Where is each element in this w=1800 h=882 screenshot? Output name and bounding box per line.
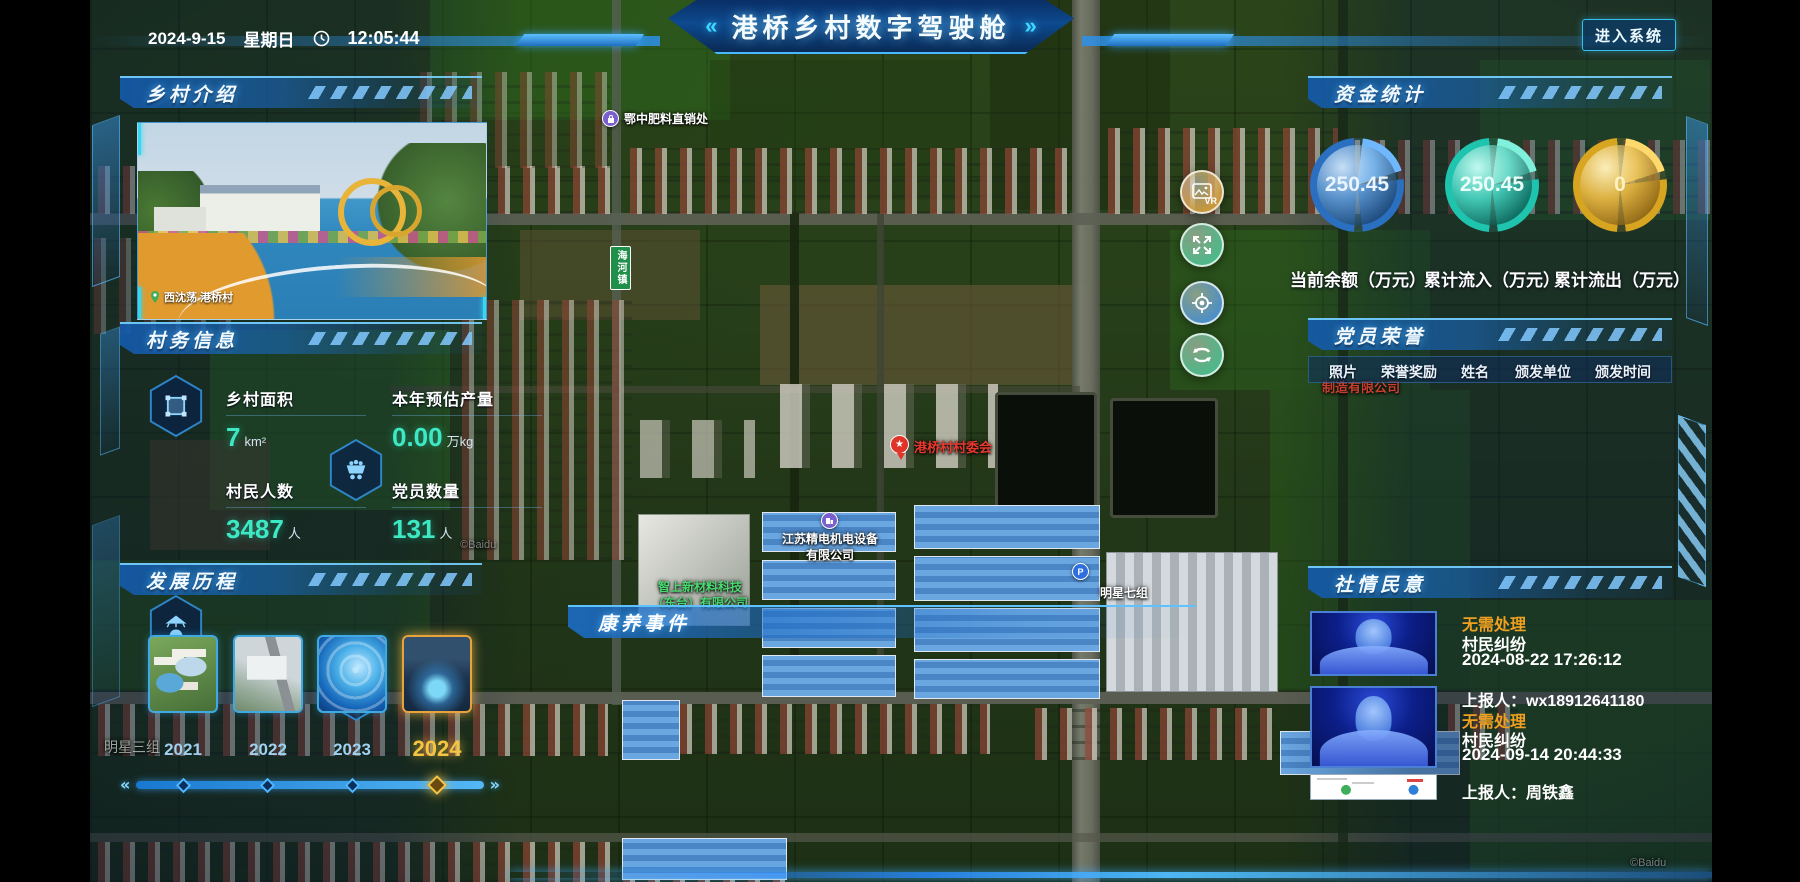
locate-button[interactable] — [1180, 281, 1224, 325]
village-committee-pin[interactable]: ★ — [890, 435, 909, 454]
stage: 鄂中肥料直销处 ★ 港桥村村委会 江苏精电机电设备 有限公司 智上新材料科技 （… — [90, 0, 1712, 882]
gauge-balance: 250.45 — [1310, 138, 1404, 232]
map-label-jingdian: 江苏精电机电设备 有限公司 — [766, 532, 894, 563]
history-year-2021[interactable]: 2021 — [148, 740, 218, 760]
sentiment-panel-header: 社情民意 — [1308, 566, 1672, 598]
history-panel-title: 发展历程 — [146, 567, 238, 594]
company-poi-icon[interactable] — [821, 512, 838, 529]
gauge-outflow-label: 累计流出（万元） — [1542, 266, 1702, 291]
fullscreen-button[interactable] — [1180, 223, 1224, 267]
photo-corner-accent — [137, 287, 141, 320]
datetime-group: 2024-9-15 星期日 12:05:44 — [148, 26, 420, 51]
expand-arrows-icon — [1190, 233, 1214, 257]
photo-corner-accent — [483, 297, 487, 320]
bag-icon — [606, 114, 616, 124]
attachment-thumbnail — [1310, 774, 1437, 800]
health-events-title: 康养事件 — [598, 609, 690, 636]
honors-col-photo: 照片 — [1329, 362, 1357, 382]
event-time: 2024-08-22 17:26:12 — [1462, 650, 1622, 670]
info-panel-header: 村务信息 — [120, 322, 482, 354]
history-thumb-2023[interactable] — [317, 635, 387, 713]
gauge-inflow-value: 250.45 — [1452, 145, 1532, 225]
stat-label: 党员数量 — [392, 478, 542, 508]
stat-label: 乡村面积 — [226, 386, 366, 416]
vr-view-button[interactable]: VR — [1180, 170, 1224, 214]
stat-value: 131 — [392, 514, 435, 544]
honors-panel-title: 党员荣誉 — [1334, 322, 1426, 349]
page-title: 港桥乡村数字驾驶舱 — [731, 8, 1010, 45]
target-icon — [1190, 291, 1214, 315]
stat-value: 3487 — [226, 514, 284, 544]
funds-panel-header: 资金统计 — [1308, 76, 1672, 108]
stat-population: 村民人数 3487人 — [226, 478, 366, 545]
avatar — [1310, 611, 1437, 676]
map-label-mingxing7: 明星七组 — [1100, 586, 1148, 602]
stat-label: 本年预估产量 — [392, 386, 542, 416]
avatar — [1310, 686, 1437, 768]
history-panel-header: 发展历程 — [120, 563, 482, 595]
stat-unit: 人 — [288, 526, 301, 541]
left-frame-decor — [100, 326, 120, 455]
enter-system-button[interactable]: 进入系统 — [1582, 19, 1676, 51]
header-accent-segment — [1106, 34, 1234, 46]
history-thumb-2022[interactable] — [233, 635, 303, 713]
left-frame-decor — [92, 515, 120, 707]
village-photo: 西沈荡 港桥村 — [137, 122, 487, 320]
event-time: 2024-09-14 20:44:33 — [1462, 745, 1622, 765]
honors-col-date: 颁发时间 — [1595, 362, 1651, 382]
photo-ring-sculpture — [370, 185, 422, 237]
sentiment-item[interactable]: 无需处理 村民纠纷 2024-08-22 17:26:12 — [1308, 608, 1672, 682]
stat-unit: 万kg — [447, 434, 474, 449]
history-timeline-slider[interactable]: « » — [120, 776, 500, 796]
health-events-panel-header: 康养事件 — [568, 605, 1196, 638]
stat-icon-area — [147, 374, 205, 438]
switch-layer-button[interactable] — [1180, 333, 1224, 377]
shop-poi-icon[interactable] — [602, 110, 619, 127]
map-label-committee: 港桥村村委会 — [914, 440, 992, 457]
honors-col-unit: 颁发单位 — [1515, 362, 1571, 382]
stat-party: 党员数量 131人 — [392, 478, 542, 545]
dashboard-root: 鄂中肥料直销处 ★ 港桥村村委会 江苏精电机电设备 有限公司 智上新材料科技 （… — [0, 0, 1800, 882]
history-year-2023[interactable]: 2023 — [317, 740, 387, 760]
intro-panel-title: 乡村介绍 — [146, 80, 238, 107]
vr-label: VR — [1204, 196, 1217, 206]
photo-corner-accent — [137, 122, 141, 155]
honors-col-name: 姓名 — [1461, 362, 1489, 382]
baidu-watermark: ©Baidu — [1630, 856, 1666, 870]
gauge-inflow: 250.45 — [1445, 138, 1539, 232]
stat-unit: 人 — [439, 526, 452, 541]
header-accent-segment — [516, 34, 644, 46]
right-frame-decor — [1678, 415, 1706, 587]
stat-value: 7 — [226, 422, 240, 452]
bottom-glow-line — [510, 872, 1712, 878]
stat-unit: km² — [244, 434, 266, 449]
gauge-outflow: 0 — [1573, 138, 1667, 232]
sentiment-item[interactable]: 无需处理 村民纠纷 2024-09-14 20:44:33 上报人：周铁鑫 — [1308, 684, 1672, 804]
intro-panel-header: 乡村介绍 — [120, 76, 482, 108]
title-right-decor-icon: » — [1025, 13, 1037, 39]
photo-building — [154, 207, 206, 233]
honors-panel-header: 党员荣誉 — [1308, 318, 1672, 350]
stat-value: 0.00 — [392, 422, 443, 452]
location-pin-icon — [150, 291, 160, 303]
info-panel-title: 村务信息 — [146, 326, 238, 353]
history-thumb-2021[interactable] — [148, 635, 218, 713]
photo-caption: 西沈荡 港桥村 — [150, 289, 233, 305]
title-left-decor-icon: « — [705, 13, 717, 39]
timeline-prev-icon[interactable]: « — [120, 780, 130, 790]
reporter-label: 上报人：周铁鑫 — [1462, 779, 1574, 803]
history-year-2024[interactable]: 2024 — [402, 736, 472, 762]
app-title-plate: « 港桥乡村数字驾驶舱 » — [668, 0, 1074, 54]
road-sign-haihe: 海河镇 — [610, 246, 631, 290]
photo-building — [200, 185, 320, 231]
gauge-balance-value: 250.45 — [1317, 145, 1397, 225]
weekday-label: 星期日 — [244, 26, 295, 51]
parking-poi-icon[interactable]: P — [1072, 563, 1089, 580]
building-icon — [825, 516, 834, 525]
map-label-fertilizer: 鄂中肥料直销处 — [624, 112, 708, 128]
gauge-outflow-value: 0 — [1580, 145, 1660, 225]
honors-table-header: 照片 荣誉奖励 姓名 颁发单位 颁发时间 — [1308, 356, 1672, 383]
honors-col-award: 荣誉奖励 — [1381, 362, 1437, 382]
sentiment-panel-title: 社情民意 — [1334, 570, 1426, 597]
timeline-next-icon[interactable]: » — [490, 780, 500, 790]
left-frame-decor — [92, 115, 120, 287]
time-label: 12:05:44 — [348, 28, 420, 49]
history-year-2022[interactable]: 2022 — [233, 740, 303, 760]
stat-yield: 本年预估产量 0.00万kg — [392, 386, 542, 453]
date-label: 2024-9-15 — [148, 29, 226, 49]
history-thumb-2024[interactable] — [402, 635, 472, 713]
timeline-marker-2024[interactable] — [427, 775, 447, 795]
clock-icon — [313, 30, 330, 47]
area-icon — [162, 392, 190, 420]
right-frame-decor — [1686, 116, 1708, 326]
swap-arrows-icon — [1190, 343, 1214, 367]
funds-panel-title: 资金统计 — [1334, 80, 1426, 107]
stat-label: 村民人数 — [226, 478, 366, 508]
